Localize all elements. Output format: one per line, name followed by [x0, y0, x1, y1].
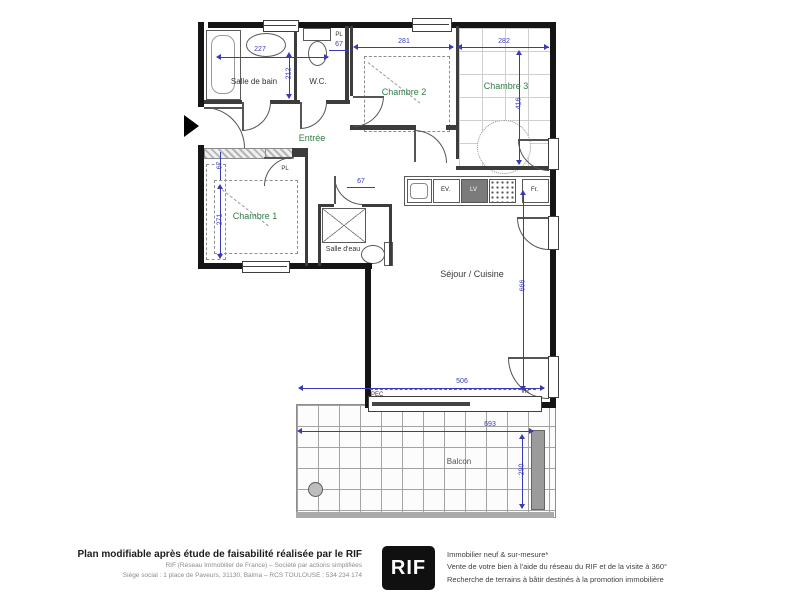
balcony-privacy-screen [531, 430, 545, 510]
dim-arrow [286, 94, 292, 99]
dim-line [299, 431, 533, 432]
placard-label: PL [330, 32, 348, 38]
room-label-entree: Entrée [288, 134, 336, 143]
room-label-salle-de-bain: Salle de bain [222, 78, 286, 86]
french-window [548, 356, 559, 398]
door-arc-bathroom [242, 102, 271, 131]
door-arc-wc [300, 102, 327, 129]
door-leaf [334, 176, 336, 204]
dim-arrow [324, 54, 329, 60]
dim-arrow [519, 434, 525, 439]
dim-arrow [286, 52, 292, 57]
dim-666: 666 [520, 272, 527, 300]
dim-271: 271 [217, 206, 224, 234]
dim-arrow [520, 190, 526, 195]
dim-line [300, 388, 544, 389]
wall [204, 100, 242, 104]
dim-line [347, 187, 375, 188]
wall [204, 148, 266, 159]
dim-arrow [216, 54, 221, 60]
door-leaf [414, 130, 416, 162]
room-label-chambre1: Chambre 1 [224, 212, 286, 221]
dim-arrow [217, 254, 223, 259]
balcony-edge [296, 512, 554, 518]
wall [550, 22, 556, 408]
room-label-chambre3: Chambre 3 [478, 82, 534, 91]
floor-plan: Balcon EV. LV Fr. [0, 0, 800, 540]
wall [305, 156, 308, 266]
footer-left-block: Plan modifiable après étude de faisabili… [30, 548, 362, 581]
dim-arrow [217, 184, 223, 189]
dim-67-placard: 67 [217, 152, 224, 180]
wall [198, 145, 204, 269]
dim-arrow [544, 44, 549, 50]
footer-service-3: Recherche de terrains à bâtir destinés à… [447, 574, 767, 586]
volet-roulant-dashed [370, 389, 536, 390]
balcony-drain [308, 482, 323, 497]
french-window [548, 216, 559, 250]
window-line [243, 266, 287, 267]
dim-227: 227 [242, 46, 278, 53]
wall [389, 204, 392, 266]
footer-service-1: Immobilier neuf & sur-mesure* [447, 549, 767, 561]
dim-506: 506 [444, 378, 480, 385]
dim-212: 212 [286, 60, 293, 88]
room-label-chambre2: Chambre 2 [374, 88, 434, 97]
wall [208, 22, 556, 28]
dim-arrow [297, 428, 302, 434]
bay-window-slider [372, 402, 470, 406]
window-line [264, 25, 296, 26]
entrance-arrow-icon [184, 115, 199, 137]
kitchen-sink-bowl [410, 183, 428, 199]
door-leaf [508, 357, 548, 359]
door-leaf [264, 157, 292, 159]
window-line [413, 24, 449, 25]
footer-right-block: Immobilier neuf & sur-mesure* Vente de v… [447, 549, 767, 586]
shower [322, 208, 366, 243]
dim-693: 693 [472, 421, 508, 428]
dim-arrow [516, 160, 522, 165]
dim-arrow [520, 386, 526, 391]
door-leaf [517, 217, 548, 219]
room-label-balcon: Balcon [436, 458, 482, 466]
wall [318, 204, 321, 266]
window-bathroom [263, 20, 299, 32]
dim-arrow [298, 385, 303, 391]
dim-line [355, 47, 453, 48]
window-chambre2 [412, 18, 452, 32]
balcony-tiled-floor [296, 404, 556, 518]
wall [198, 22, 204, 107]
page: Balcon EV. LV Fr. [0, 0, 800, 600]
washbasin [246, 33, 286, 57]
wall [365, 263, 371, 408]
footer: Plan modifiable après étude de faisabili… [0, 540, 800, 600]
dim-281: 281 [386, 38, 422, 45]
placard-label: PL [276, 166, 294, 172]
evier-label: EV. [433, 187, 458, 193]
dim-67-wc: 67 [329, 41, 349, 48]
room-label-salle-deau: Salle d'eau [320, 246, 366, 253]
rif-logo: RIF [382, 546, 435, 590]
door-arc-entrance [204, 107, 245, 148]
footer-service-2: Vente de votre bien à l'aide du réseau d… [447, 561, 767, 573]
dim-arrow [449, 44, 454, 50]
french-window [548, 138, 559, 170]
door-leaf [242, 102, 244, 130]
footer-title: Plan modifiable après étude de faisabili… [30, 548, 362, 561]
door-leaf [300, 102, 302, 128]
wall [350, 26, 353, 96]
window-chambre1 [242, 261, 290, 273]
dishwasher-label: LV [461, 187, 486, 193]
room-label-wc: W.C. [300, 78, 336, 86]
footer-company-line1: RIF (Réseau Immobilier de France) – Soci… [30, 561, 362, 571]
dim-282: 282 [486, 38, 522, 45]
wall [362, 204, 392, 207]
dim-arrow [540, 385, 545, 391]
dim-arrow [353, 44, 358, 50]
dim-line [329, 50, 349, 51]
door-arc-sejour [414, 130, 447, 163]
dim-arrow [519, 504, 525, 509]
dim-arrow [529, 428, 534, 434]
dim-416: 416 [516, 90, 523, 118]
dim-line [459, 47, 549, 48]
toilet-cistern [303, 28, 331, 41]
dim-290: 290 [519, 456, 526, 484]
door-leaf [518, 139, 548, 141]
wall [294, 26, 297, 104]
dim-arrow [457, 44, 462, 50]
dim-line [218, 57, 328, 58]
door-leaf [204, 107, 244, 109]
door-arc-french-window [517, 218, 549, 250]
dim-67-couloir: 67 [347, 178, 375, 185]
room-label-sejour-cuisine: Séjour / Cuisine [428, 270, 516, 279]
hob [489, 179, 516, 203]
footer-company-line2: Siège social : 1 place de Paveurs, 31130… [30, 571, 362, 581]
dim-arrow [516, 50, 522, 55]
